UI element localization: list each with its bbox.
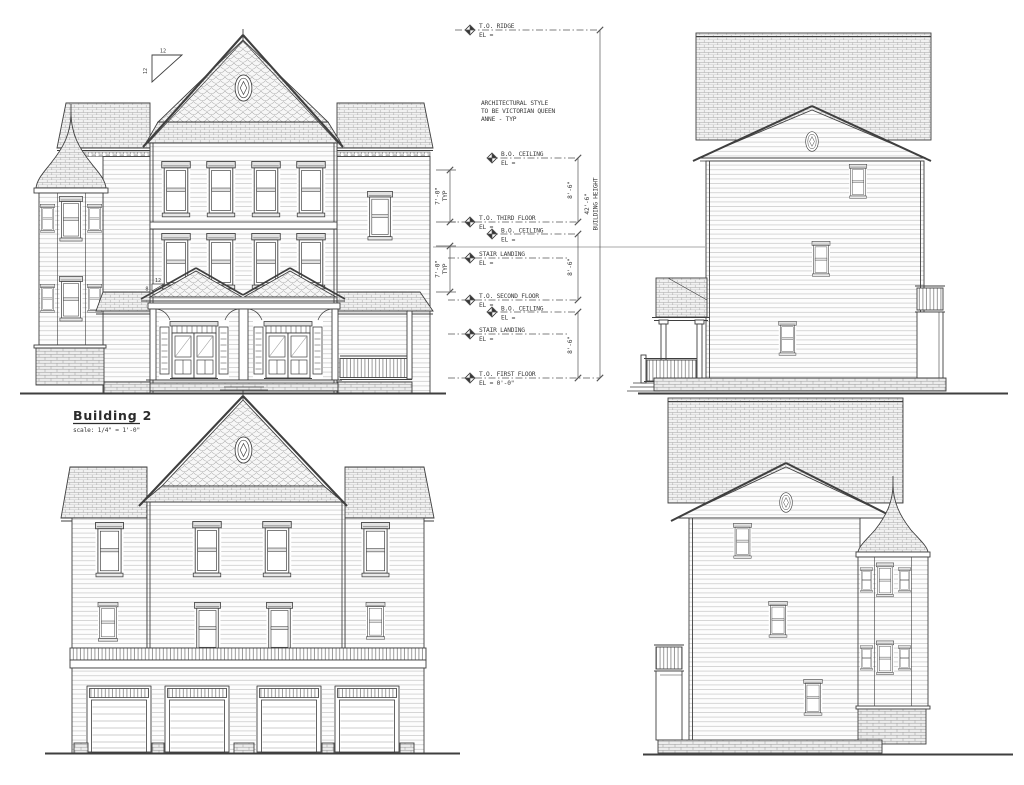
drawing-scale: scale: 1/4" = 1'-0" bbox=[73, 427, 140, 434]
rear-left-roof bbox=[61, 467, 147, 518]
pitch-run-label: 12 bbox=[155, 278, 161, 284]
title-block: Building 2 scale: 1/4" = 1'-0" bbox=[73, 408, 152, 434]
front-floor-band bbox=[150, 222, 337, 229]
window bbox=[769, 601, 788, 637]
level-label: B.O. CEILING bbox=[501, 151, 544, 158]
level-label: T.O. FIRST FLOOR bbox=[479, 371, 536, 378]
window bbox=[162, 161, 191, 217]
level-label: B.O. CEILING bbox=[501, 306, 544, 313]
deck-band bbox=[70, 660, 426, 668]
oval-vent bbox=[780, 493, 793, 513]
turret-brick-base bbox=[858, 709, 926, 744]
level-elevation: EL = bbox=[479, 32, 494, 39]
window bbox=[87, 204, 102, 232]
style-note: ARCHITECTURAL STYLE TO BE VICTORIAN QUEE… bbox=[481, 100, 556, 123]
garage-door bbox=[164, 685, 230, 753]
front-right-roof bbox=[337, 103, 433, 148]
porch-railing bbox=[340, 359, 412, 378]
entry-door bbox=[159, 321, 229, 379]
front-gable-eave bbox=[146, 122, 341, 143]
window bbox=[860, 646, 873, 670]
window bbox=[898, 646, 911, 670]
front-elevation: 12 12 12 8 bbox=[20, 29, 446, 394]
front-left-wing-wall bbox=[103, 157, 150, 394]
level-elevation: EL = bbox=[501, 237, 516, 244]
window bbox=[368, 191, 393, 240]
dim-story-height: 8'-6" bbox=[567, 258, 574, 276]
dim-story-height: 8'-6" bbox=[567, 336, 574, 354]
window bbox=[876, 563, 893, 597]
turret-brick-base bbox=[36, 348, 104, 385]
dim-story-height: 8'-6" bbox=[567, 181, 574, 199]
level-row-bo-ceiling-1st: B.O. CEILING EL = bbox=[487, 306, 544, 322]
window bbox=[898, 568, 911, 592]
pitch-rise-label: 8 bbox=[145, 287, 148, 293]
level-marker-icon bbox=[465, 373, 475, 383]
window bbox=[860, 568, 873, 592]
style-note-line2: TO BE VICTORIAN QUEEN bbox=[481, 108, 556, 115]
level-row-stair-landing-lower: STAIR LANDING EL = bbox=[465, 327, 525, 343]
style-note-line3: ANNE - TYP bbox=[481, 116, 517, 123]
level-row-bo-ceiling-3rd: B.O. CEILING EL = bbox=[487, 151, 544, 167]
window bbox=[207, 161, 236, 217]
foundation bbox=[658, 740, 882, 753]
side-elevation-right bbox=[627, 33, 1008, 394]
level-label: T.O. THIRD FLOOR bbox=[479, 215, 536, 222]
building-height-value: 42'-6" bbox=[584, 193, 591, 214]
window bbox=[366, 602, 385, 639]
drawing-title: Building 2 bbox=[73, 408, 152, 423]
window bbox=[267, 602, 293, 653]
elevation-drawing: 12 12 12 8 bbox=[0, 0, 1024, 785]
garage-door bbox=[86, 685, 152, 753]
level-row-bo-ceiling-2nd: B.O. CEILING EL = bbox=[487, 228, 544, 244]
elevation-sheet: 12 12 12 8 bbox=[0, 0, 1024, 785]
window bbox=[60, 276, 83, 321]
garage-door bbox=[256, 685, 322, 753]
level-label: T.O. RIDGE bbox=[479, 23, 515, 30]
level-label: T.O. SECOND FLOOR bbox=[479, 293, 539, 300]
oval-vent bbox=[235, 437, 252, 463]
side-elevation-left bbox=[643, 398, 1013, 755]
level-label: STAIR LANDING bbox=[479, 251, 525, 258]
rear-gable-eave bbox=[143, 486, 343, 502]
window bbox=[779, 321, 797, 355]
window bbox=[876, 641, 893, 675]
level-marker-icon bbox=[465, 25, 475, 35]
rear-right-roof bbox=[345, 467, 434, 518]
rear-main-wall bbox=[147, 502, 345, 648]
window bbox=[195, 602, 221, 653]
window bbox=[40, 204, 55, 232]
garage-door bbox=[334, 685, 400, 753]
dim-typ-label: TYP bbox=[442, 263, 449, 274]
window bbox=[812, 241, 830, 276]
roof-pitch-symbol-main: 12 12 bbox=[143, 49, 182, 83]
window bbox=[193, 521, 222, 577]
dim-string-right: 8'-6" 8'-6" 8'-6" bbox=[567, 155, 581, 381]
deck-railing bbox=[70, 648, 426, 660]
level-row-stair-landing-upper: STAIR LANDING EL = bbox=[465, 251, 525, 267]
level-label: STAIR LANDING bbox=[479, 327, 525, 334]
style-note-line1: ARCHITECTURAL STYLE bbox=[481, 100, 548, 107]
entry-door bbox=[253, 321, 323, 379]
window bbox=[96, 522, 124, 577]
porch-end-railing bbox=[656, 647, 682, 669]
dim-ceiling-height: 7'-0" bbox=[435, 187, 442, 205]
dim-building-height: 42'-6" BUILDING HEIGHT bbox=[584, 27, 603, 381]
level-elevation: EL = bbox=[479, 336, 494, 343]
window bbox=[40, 284, 55, 312]
window bbox=[297, 161, 326, 217]
front-porch-wrap-roof bbox=[337, 292, 433, 311]
window bbox=[849, 164, 867, 198]
level-elevation: EL = bbox=[501, 315, 516, 322]
front-porch-end-railing bbox=[917, 288, 943, 310]
rear-elevation bbox=[45, 390, 460, 754]
window bbox=[804, 679, 823, 715]
window bbox=[734, 523, 752, 558]
level-row-first-floor: T.O. FIRST FLOOR EL = 0'-0" bbox=[465, 371, 536, 387]
window bbox=[98, 602, 118, 641]
window bbox=[263, 521, 292, 577]
dim-ceiling-height: 7'-0" bbox=[435, 260, 442, 278]
level-elevation: EL = bbox=[479, 260, 494, 267]
dim-string-left: 7'-0" TYP 7'-0" TYP bbox=[435, 167, 457, 295]
level-label: B.O. CEILING bbox=[501, 228, 544, 235]
window bbox=[60, 196, 83, 241]
window bbox=[252, 161, 281, 217]
side-porch-roof bbox=[656, 278, 707, 317]
dim-typ-label: TYP bbox=[442, 190, 449, 201]
oval-vent bbox=[806, 132, 819, 152]
level-marker-icon bbox=[465, 253, 475, 263]
level-elevation: EL = bbox=[501, 160, 516, 167]
level-marker-icon bbox=[465, 295, 475, 305]
level-marker-icon bbox=[465, 217, 475, 227]
pitch-run-label: 12 bbox=[160, 49, 166, 55]
foundation bbox=[654, 378, 946, 391]
level-elevation: EL = 0'-0" bbox=[479, 380, 514, 387]
level-row-ridge: T.O. RIDGE EL = bbox=[465, 23, 515, 39]
oval-vent bbox=[235, 75, 252, 101]
pitch-rise-label: 12 bbox=[143, 68, 149, 74]
level-marker-icon bbox=[487, 153, 497, 163]
building-height-label: BUILDING HEIGHT bbox=[593, 177, 600, 230]
level-marker-icon bbox=[465, 329, 475, 339]
window bbox=[362, 522, 390, 577]
